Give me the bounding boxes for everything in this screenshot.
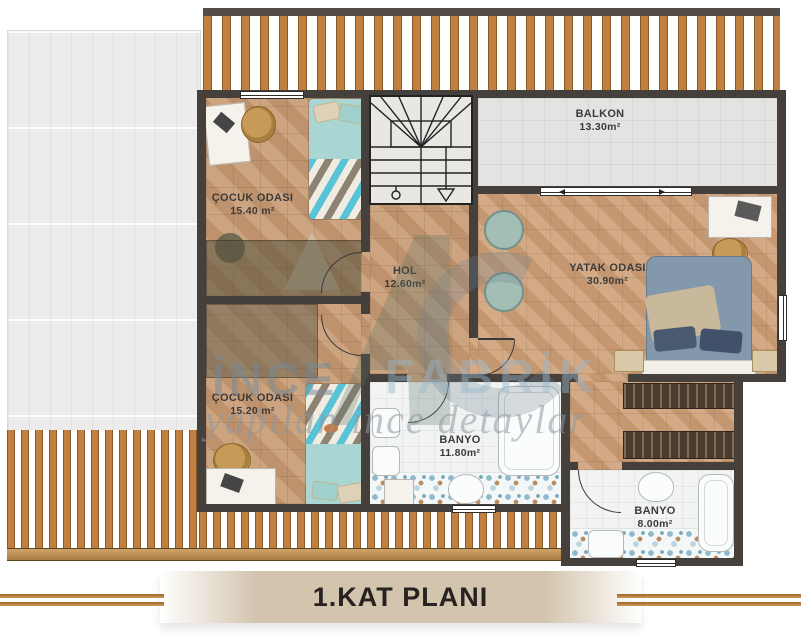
room-area: 8.00m²: [605, 518, 705, 531]
room-label-bathroom-large: BANYO 11.80m²: [410, 434, 510, 460]
wall-bathroom-large-right: [561, 382, 570, 566]
door-opening-kids-bottom: [361, 314, 370, 354]
nightstand: [614, 350, 644, 372]
room-area: 30.90m²: [545, 275, 670, 288]
room-area: 15.40 m²: [190, 205, 315, 218]
slide-arrow-icon: [559, 189, 565, 195]
room-name: ÇOCUK ODASI: [190, 192, 315, 205]
armchair-icon: [484, 210, 524, 250]
nightstand: [752, 350, 780, 372]
staircase: [369, 95, 473, 205]
room-label-bedroom: YATAK ODASI 30.90m²: [545, 262, 670, 288]
decorative-line-left: [0, 602, 164, 606]
round-rug-kids-top: [241, 106, 276, 143]
decorative-line-right: [617, 594, 801, 598]
floor-plan-canvas: ÇOCUK ODASI 15.40 m² HOL 12.60m² BALKON …: [0, 0, 801, 636]
wall-exterior-bottom-left: [197, 504, 570, 512]
decorative-line-right: [617, 602, 801, 606]
window-bathroom-small: [636, 559, 676, 567]
staircase-drawing: [369, 95, 473, 205]
window-bathroom-large: [452, 505, 496, 513]
room-label-hall: HOL 12.60m²: [360, 265, 450, 291]
cat-icon: [324, 424, 338, 433]
room-area: 11.80m²: [410, 447, 510, 460]
bed-pillow: [653, 326, 697, 352]
opening-bedroom-dressing: [578, 374, 628, 382]
window-bedroom: [778, 295, 787, 341]
washing-machine-icon: [384, 479, 414, 505]
wardrobe-kids-bottom: [206, 304, 318, 378]
room-label-kids-bottom: ÇOCUK ODASI 15.20 m²: [190, 392, 315, 418]
door-opening-bedroom: [469, 338, 478, 374]
slide-arrow-icon: [659, 189, 665, 195]
decorative-line-left: [0, 594, 164, 598]
room-label-bathroom-small: BANYO 8.00m²: [605, 505, 705, 531]
wall-bathroom-small-right: [734, 382, 743, 566]
wall-balcony-right: [777, 98, 786, 194]
bed-chevron-blanket: [306, 384, 369, 446]
sink: [372, 446, 400, 476]
room-name: BALKON: [540, 108, 660, 121]
top-deck-rail: [203, 8, 780, 16]
wardrobe-strip: [623, 383, 736, 409]
room-name: HOL: [360, 265, 450, 278]
bottom-deck-slats: [199, 512, 568, 548]
room-name: ÇOCUK ODASI: [190, 392, 315, 405]
door-opening-bathroom-small: [578, 462, 622, 470]
sliding-door-balcony: [540, 187, 692, 196]
room-area: 12.60m²: [360, 278, 450, 291]
wall-kids-rooms-divider: [206, 296, 361, 304]
wall-bedroom-right: [777, 194, 786, 380]
sink: [588, 530, 624, 558]
room-name: BANYO: [605, 505, 705, 518]
room-area: 13.30m²: [540, 121, 660, 134]
bed-pillow: [699, 328, 743, 354]
sink: [372, 408, 400, 438]
title-band: 1.KAT PLANI: [160, 571, 641, 623]
page-title: 1.KAT PLANI: [160, 571, 641, 623]
wall-exterior-left: [197, 98, 206, 512]
room-label-balcony: BALKON 13.30m²: [540, 108, 660, 134]
left-roof-surface: [7, 30, 201, 432]
armchair-icon: [484, 272, 524, 312]
desk-kids-bottom: [206, 468, 276, 508]
room-name: YATAK ODASI: [545, 262, 670, 275]
window-kids-top: [240, 91, 304, 99]
door-opening-bathroom-large: [407, 374, 447, 382]
bathtub-large-bathroom: [498, 386, 560, 476]
toilet: [638, 472, 674, 502]
bed-chevron-blanket: [309, 159, 369, 219]
bed-pillow: [311, 480, 339, 501]
room-label-kids-top: ÇOCUK ODASI 15.40 m²: [190, 192, 315, 218]
left-deck-slats: [7, 430, 199, 548]
bottom-deck-rail: [7, 548, 568, 561]
wardrobe-strip: [623, 431, 736, 459]
toilet: [448, 474, 484, 504]
room-name: BANYO: [410, 434, 510, 447]
room-area: 15.20 m²: [190, 405, 315, 418]
top-deck-slats: [203, 16, 780, 92]
